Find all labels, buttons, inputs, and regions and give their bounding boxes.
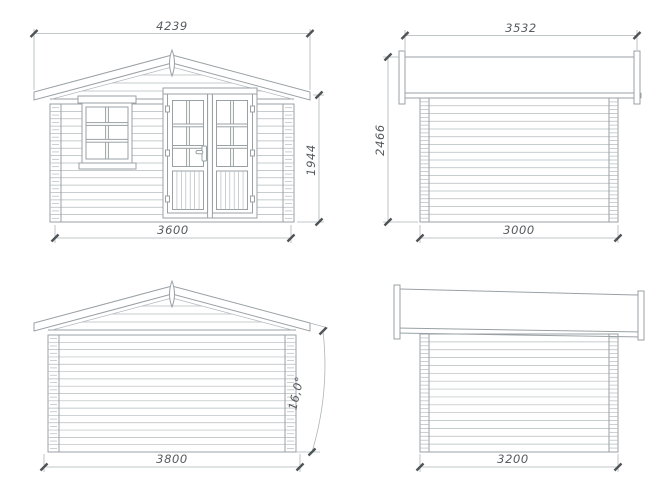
front-barge-board-left: [34, 55, 172, 100]
front-double-door: [163, 88, 257, 218]
side-b-eave-fascia-top: [396, 328, 642, 332]
side-b-corner-logs-right: [609, 338, 618, 448]
rear-wall-siding: [48, 342, 296, 444]
door-hinge-icon: [166, 150, 170, 156]
window-header-board: [78, 96, 136, 103]
rear-barge-board-right: [172, 286, 310, 331]
door-right-muntin-horizontal-2: [217, 146, 248, 149]
door-hinge-icon: [251, 150, 255, 156]
side-b-corner-logs-left: [420, 338, 429, 448]
front-window: [78, 96, 136, 169]
side-b-wall-outline: [420, 334, 618, 452]
dim-side-a-overall-height-value: 2466: [373, 124, 387, 156]
dim-side-b-wall-length-value: 3200: [497, 452, 529, 466]
side-elevation-b: 3200: [394, 285, 644, 472]
side-a-wall-siding: [420, 106, 618, 215]
side-a-barge-end-right: [634, 51, 640, 104]
dim-front-wall-height-value: 1944: [304, 144, 318, 176]
side-b-roof: [394, 285, 644, 340]
door-hinge-icon: [166, 106, 170, 112]
door-hinge-icon: [251, 106, 255, 112]
rear-roof-finial: [170, 281, 175, 307]
door-left-muntin-horizontal-1: [173, 124, 204, 127]
door-hinge-icon: [166, 196, 170, 202]
dim-front-wall-width-value: 3600: [157, 223, 189, 237]
window-muntin-horizontal-2: [86, 139, 128, 142]
dim-rear-roof-pitch-value: 16,0°: [285, 375, 306, 412]
dim-side-a-roof-length-value: 3532: [505, 21, 537, 35]
door-left-muntin-horizontal-2: [173, 146, 204, 149]
side-a-barge-end-left: [399, 51, 405, 104]
door-handle-lever: [196, 151, 203, 154]
door-hinge-icon: [251, 196, 255, 202]
dim-front-roof-width-value: 4239: [156, 19, 188, 33]
front-elevation: 4239 3600 1944: [31, 19, 325, 243]
door-astragal: [208, 94, 213, 218]
side-elevation-a: 3532 2466 3000: [373, 21, 641, 243]
side-b-wall-siding: [420, 342, 618, 444]
window-muntin-horizontal-1: [86, 123, 128, 126]
door-right-muntin-horizontal-1: [217, 124, 248, 127]
cabin-technical-drawing: 4239 3600 1944: [0, 0, 667, 500]
dim-rear-base-width-value: 3800: [156, 452, 188, 466]
rear-barge-board-left: [34, 286, 172, 331]
side-b-ridge-line: [400, 289, 638, 295]
door-right-muntin-vertical: [231, 101, 234, 167]
side-b-barge-end-left: [394, 285, 400, 339]
rear-elevation: 3800 16,0°: [34, 281, 328, 472]
side-b-barge-end-right: [638, 291, 644, 340]
window-sill: [79, 163, 136, 169]
dim-side-a-wall-length-value: 3000: [503, 223, 535, 237]
side-a-roof: [399, 51, 641, 104]
door-left-muntin-vertical: [187, 101, 190, 167]
front-roof-finial: [170, 50, 175, 76]
window-muntin-vertical: [106, 107, 109, 159]
